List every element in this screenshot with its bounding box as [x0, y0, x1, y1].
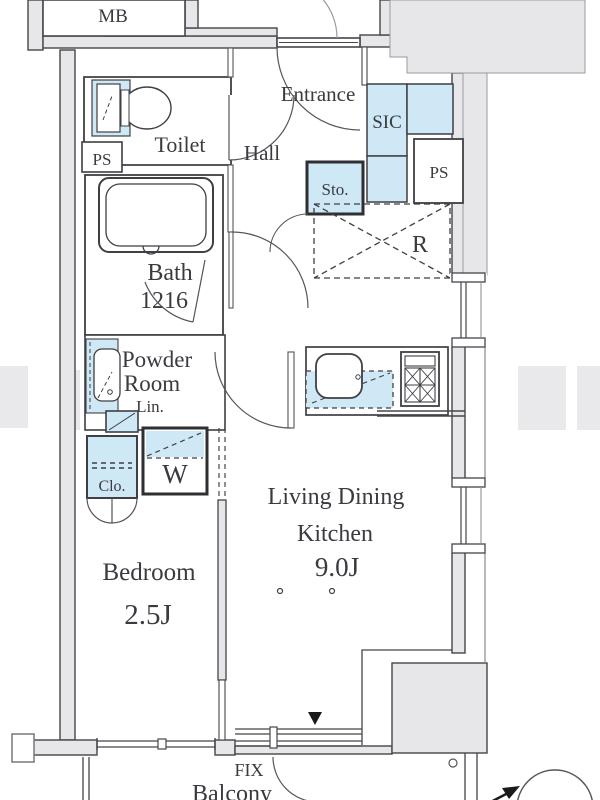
storage-label: Sto.: [322, 180, 349, 199]
bath-room: Bath 1216: [85, 175, 223, 335]
kitchen-counter: [306, 347, 465, 416]
exterior-corridor: [390, 0, 585, 73]
balcony-label: Balcony: [192, 781, 272, 800]
bedroom-label: Bedroom: [102, 559, 196, 586]
bedroom-size-label: 2.5J: [124, 599, 172, 631]
washbasin-icon: [86, 339, 120, 413]
window-kitchen: [450, 273, 487, 347]
powder-room: Powder Room Lin.: [85, 335, 225, 432]
floor-plan-page: MB Toilet PS Bath 1216: [0, 0, 600, 800]
mb-label: MB: [98, 6, 128, 27]
ldk-label-2: Kitchen: [297, 521, 373, 547]
ps-left-box: PS: [82, 142, 122, 172]
window-ldk: [450, 478, 487, 553]
bath-size-label: 1216: [140, 288, 188, 314]
bathtub-icon: [99, 178, 213, 254]
sic-label: SIC: [372, 112, 402, 133]
powder-label-2: Room: [124, 371, 180, 396]
ldk-size-label: 9.0J: [315, 552, 359, 582]
washer-space-icon: [146, 431, 204, 458]
ps-left-label: PS: [93, 150, 112, 169]
floor-plan-drawing: MB Toilet PS Bath 1216: [0, 0, 600, 800]
linen-label: Lin.: [136, 397, 164, 416]
bath-label: Bath: [147, 260, 192, 286]
balcony-pillar: [12, 734, 34, 762]
washer-label: W: [162, 459, 188, 489]
powder-label-1: Powder: [122, 347, 193, 372]
closet-label: Clo.: [98, 478, 125, 495]
mb-box: MB: [43, 0, 185, 36]
linen-shelf: [106, 411, 138, 432]
ps-right-label: PS: [430, 163, 449, 182]
ldk-label-1: Living Dining: [268, 484, 405, 510]
toilet-label: Toilet: [154, 132, 205, 157]
fix-label: FIX: [234, 760, 263, 780]
ps-right-box: PS: [414, 139, 463, 203]
fridge-label: R: [412, 232, 428, 258]
sliding-door: [219, 680, 225, 740]
hall-label: Hall: [244, 141, 280, 165]
entrance-label: Entrance: [281, 82, 356, 106]
washer-space: W: [143, 428, 207, 494]
